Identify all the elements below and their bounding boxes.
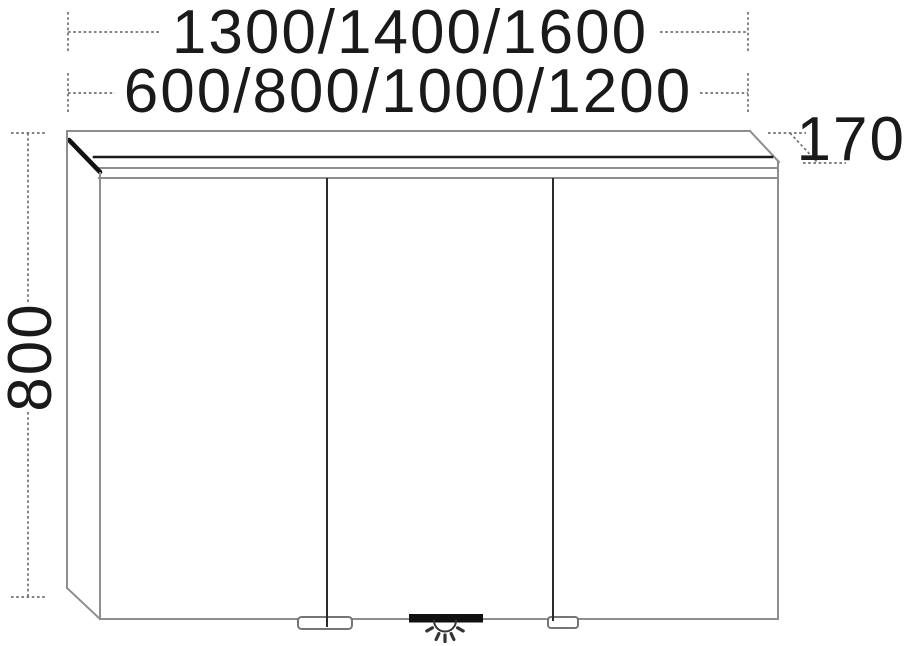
dimension-height: 800 bbox=[0, 133, 65, 597]
cabinet-body bbox=[67, 131, 779, 642]
dim-label-height: 800 bbox=[0, 302, 65, 411]
bottom-light-bar bbox=[409, 614, 483, 623]
light-rays-icon bbox=[427, 621, 463, 642]
side-panel-bottom-edge bbox=[67, 588, 100, 619]
light-ray bbox=[458, 628, 464, 631]
light-ray bbox=[451, 634, 454, 640]
technical-drawing-page: 1300/1400/1600 600/800/1000/1200 800 170 bbox=[0, 0, 914, 646]
dim-label-width-row2: 600/800/1000/1200 bbox=[124, 57, 692, 126]
cabinet-diagram: 1300/1400/1600 600/800/1000/1200 800 170 bbox=[0, 0, 914, 646]
door-handle-left bbox=[298, 617, 352, 629]
dimension-depth: 170 bbox=[768, 105, 906, 174]
light-ray bbox=[436, 634, 439, 640]
dimension-width-row2: 600/800/1000/1200 bbox=[68, 57, 748, 126]
light-ray bbox=[427, 628, 433, 631]
dim-label-depth: 170 bbox=[797, 105, 906, 174]
